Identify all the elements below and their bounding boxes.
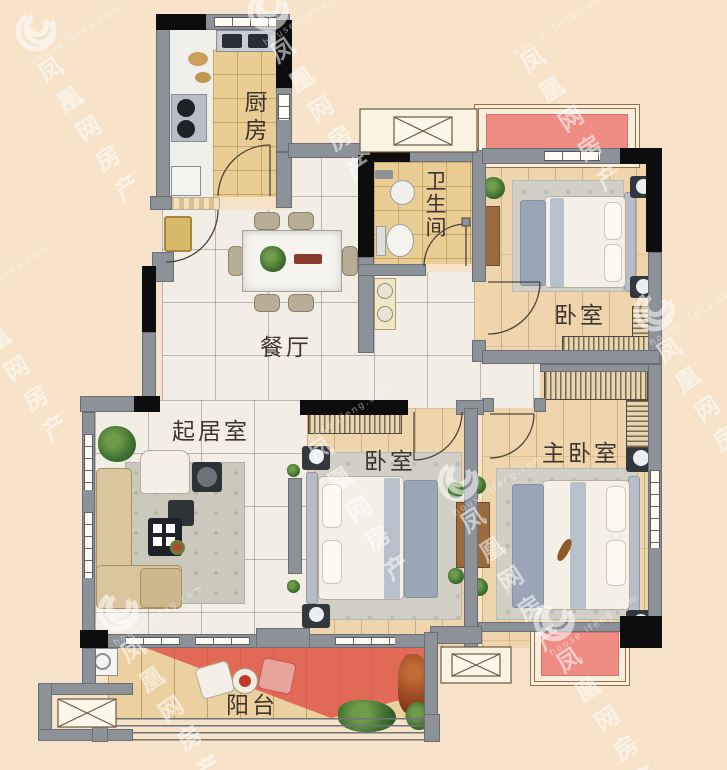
equipment-platform-bottom — [541, 632, 619, 676]
toilet-bowl — [386, 224, 414, 257]
wall-bed1-bottom — [482, 350, 660, 364]
floor-plan: 厨房 卫生间 卧室 餐厅 起居室 卧室 主卧室 阳台 — [0, 0, 727, 770]
bed2-plant-2 — [448, 568, 464, 584]
bed2-stripe — [384, 478, 400, 599]
bathroom-faucet — [375, 170, 393, 179]
wall-bed1-right — [648, 252, 662, 364]
wall-balcony-left — [82, 648, 96, 688]
living-window-1 — [84, 434, 93, 490]
bed1-pillow-2 — [604, 244, 622, 282]
wall-kitchen-right-lower — [276, 152, 292, 208]
ac-enclosure-bottom — [38, 729, 133, 741]
tv-plant-bottom — [287, 580, 300, 593]
living-armchair — [140, 450, 190, 494]
balcony-label: 阳台 — [226, 686, 278, 720]
wall-kitchen-left — [156, 14, 170, 210]
bed2-headboard — [306, 472, 318, 604]
living-label: 起居室 — [172, 412, 250, 446]
tv-plant-top — [287, 464, 300, 477]
kitchen-sink-basin-1 — [222, 34, 242, 48]
kitchen-window — [214, 17, 276, 27]
balcony-slider-3 — [335, 637, 395, 645]
wall-master-top-east — [540, 364, 660, 372]
wall-bath-bottom — [358, 264, 426, 276]
stove-burner-2 — [177, 120, 195, 138]
wall-balcony-right — [424, 632, 438, 727]
toilet-tank — [376, 226, 386, 256]
bathroom-basin — [390, 180, 415, 205]
wall-dining-left-black — [142, 266, 156, 332]
kitchen-right-window — [278, 94, 290, 120]
bed2-lamp-2 — [309, 607, 324, 622]
kitchen-decor-2 — [195, 72, 211, 83]
dining-chair-1 — [254, 212, 280, 230]
kitchen-cabinet — [171, 166, 201, 196]
wall-dining-left — [142, 332, 156, 398]
living-plant — [98, 426, 136, 462]
stove-burner-1 — [177, 99, 195, 117]
living-window-2 — [84, 512, 93, 578]
watermark-site: house.ifeng.com — [0, 243, 51, 308]
wall-balcony-block — [256, 628, 310, 648]
balcony-slider-1 — [125, 637, 180, 645]
dining-chair-2 — [288, 212, 314, 230]
dining-chair-3 — [254, 294, 280, 312]
balcony-slider-2 — [195, 637, 250, 645]
wall-corridor-black — [300, 400, 408, 415]
coffee-table-plant — [170, 540, 185, 555]
wall-bath-top-black — [370, 148, 410, 162]
wall-master-corner-black — [620, 616, 662, 648]
railing-post-right — [424, 714, 440, 742]
watermark-brand: 凤凰网房产 — [0, 285, 77, 447]
master-blanket — [512, 484, 544, 608]
kitchen-decor-1 — [188, 52, 208, 66]
dining-chair-6 — [342, 246, 358, 276]
wall-kitchen-right-black — [276, 20, 292, 88]
wall-master-south — [478, 622, 628, 632]
flue-symbol-top — [360, 109, 477, 152]
wall-bath-left-black — [358, 155, 374, 257]
flue-symbol-bottom — [441, 647, 511, 683]
wall-kitchen-top-black — [156, 14, 206, 30]
entry-door-mat — [168, 197, 220, 210]
bed2-blanket — [404, 480, 438, 598]
bedroom-top-label: 卧室 — [554, 296, 606, 330]
washing-machine-door — [94, 653, 111, 670]
master-window — [650, 470, 660, 548]
dining-chair-4 — [288, 294, 314, 312]
dining-table-plant — [260, 246, 286, 272]
master-bedroom-label: 主卧室 — [542, 434, 620, 468]
wall-living-top-black — [134, 396, 160, 412]
bed1-bookshelf — [562, 336, 650, 351]
vanity-basin-1 — [377, 283, 393, 299]
railing-post-left — [92, 714, 108, 742]
bed1-stripe — [550, 198, 564, 287]
bed2-pillow-1 — [322, 484, 342, 528]
watermark-site: house.ifeng.com — [512, 0, 605, 58]
wall-bed2-master-divider — [464, 408, 478, 648]
master-lamp-1 — [633, 450, 649, 466]
watermark-site: house.ifeng.com — [30, 3, 123, 68]
bed1-blanket — [520, 200, 546, 286]
kitchen-label: 厨房 — [236, 90, 270, 146]
master-pillow-1 — [606, 486, 626, 532]
bedroom-mid-label: 卧室 — [364, 442, 416, 476]
master-pillow-2 — [606, 540, 626, 586]
bed1-window — [544, 151, 600, 161]
sofa-chaise — [140, 568, 182, 608]
bed2-bookshelf — [308, 414, 402, 434]
bed1-pillow-1 — [604, 202, 622, 240]
bed1-plant — [483, 177, 505, 199]
dining-table — [242, 230, 342, 292]
wall-entry — [150, 196, 172, 210]
master-stripe — [570, 482, 586, 609]
watermark-brand: 凤凰网房产 — [30, 45, 149, 207]
wall-master-north-jamb — [534, 398, 546, 412]
bed2-pillow-2 — [322, 540, 342, 584]
tv-cabinet — [288, 478, 302, 574]
master-wardrobe-right — [626, 400, 650, 448]
kitchen-sink-basin-2 — [248, 34, 268, 48]
entry-rug — [164, 216, 192, 252]
balcony-railing — [96, 718, 434, 742]
ac-enclosure-top — [38, 683, 133, 695]
living-side-table-top — [197, 467, 217, 487]
bathroom-label: 卫生间 — [420, 170, 450, 239]
dining-label: 餐厅 — [260, 328, 312, 362]
wall-living-bottom-black — [80, 630, 108, 648]
vanity-basin-2 — [377, 306, 393, 322]
dining-table-tray — [294, 254, 322, 264]
phoenix-swirl-icon — [7, 2, 65, 60]
wall-bath-right — [472, 150, 486, 282]
wall-bed1-right-black — [646, 148, 662, 252]
master-wardrobe-top — [544, 370, 648, 400]
bed2-lamp-1 — [309, 449, 324, 464]
bed2-plant-1 — [448, 482, 464, 498]
